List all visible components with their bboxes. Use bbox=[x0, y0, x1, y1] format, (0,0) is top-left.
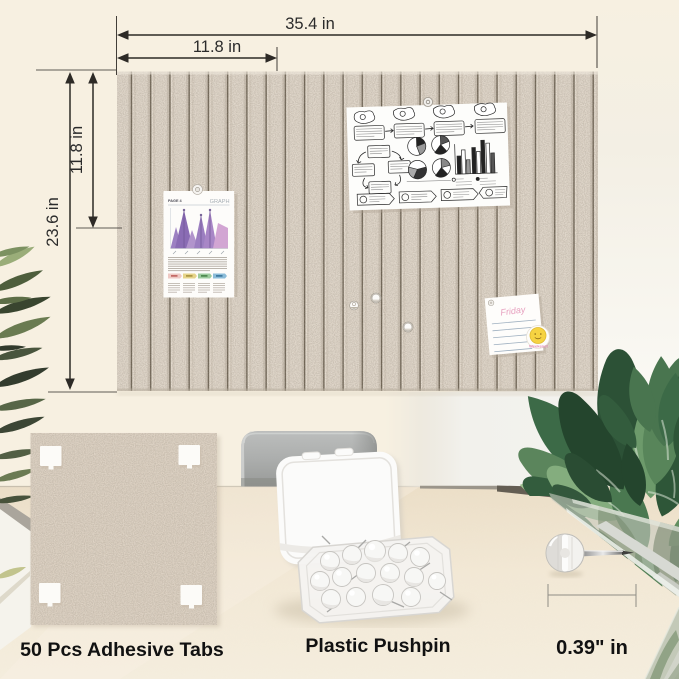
svg-text:0.39" in: 0.39" in bbox=[556, 637, 628, 659]
svg-text:Weekend!: Weekend! bbox=[529, 344, 548, 349]
svg-text:50 Pcs Adhesive Tabs: 50 Pcs Adhesive Tabs bbox=[20, 639, 224, 661]
svg-text:23.6 in: 23.6 in bbox=[44, 197, 62, 247]
svg-text:35.4 in: 35.4 in bbox=[285, 15, 335, 33]
svg-text:GRAPH: GRAPH bbox=[210, 199, 230, 205]
svg-text:11.8 in: 11.8 in bbox=[68, 126, 86, 174]
svg-text:Plastic Pushpin: Plastic Pushpin bbox=[305, 635, 450, 657]
svg-text:PAGE 4: PAGE 4 bbox=[168, 199, 183, 203]
svg-text:11.8 in: 11.8 in bbox=[193, 38, 241, 56]
